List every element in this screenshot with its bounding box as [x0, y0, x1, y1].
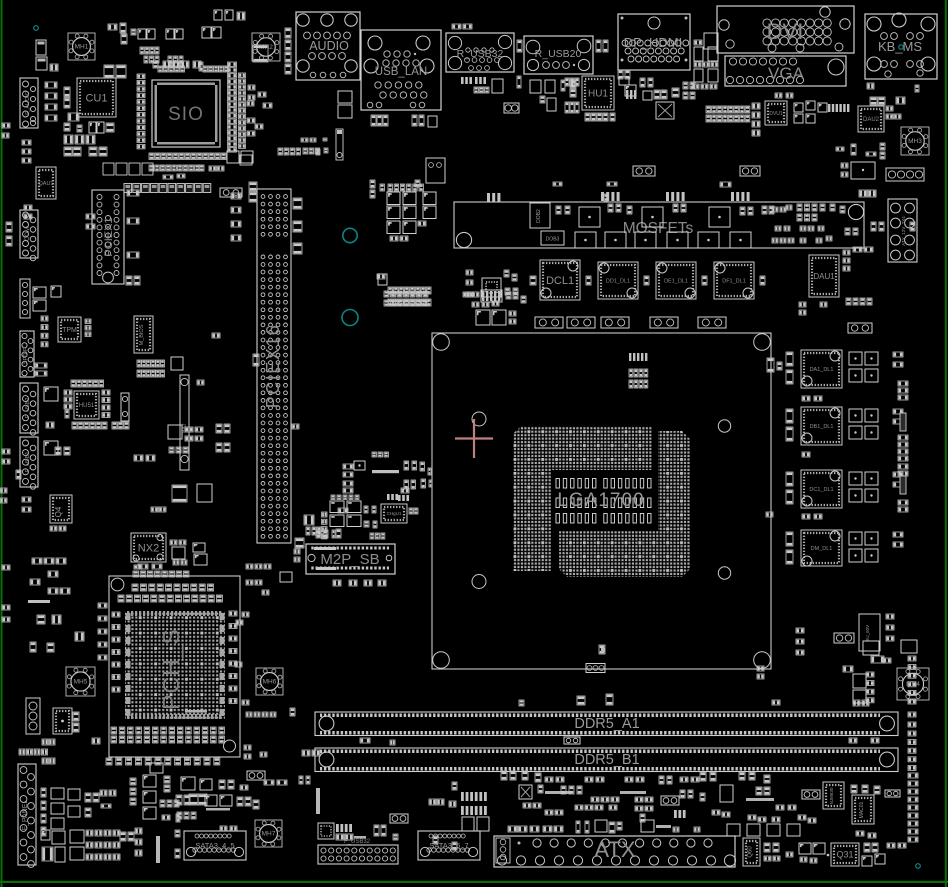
- svg-text:USB_LAN: USB_LAN: [375, 66, 427, 78]
- svg-text:MH5: MH5: [74, 679, 88, 686]
- svg-text:DVI: DVI: [767, 19, 804, 44]
- svg-text:NJM630: NJM630: [829, 787, 834, 804]
- svg-text:DDR5_B1: DDR5_B1: [574, 752, 639, 768]
- svg-text:SPDIF: SPDIF: [23, 347, 29, 364]
- svg-text:F_USB2: F_USB2: [25, 398, 31, 419]
- svg-text:DAU1: DAU1: [813, 272, 835, 281]
- svg-text:ATX: ATX: [594, 837, 635, 862]
- svg-text:SATA3_4_5: SATA3_4_5: [195, 841, 234, 850]
- svg-text:DDR5_A1: DDR5_A1: [574, 716, 639, 732]
- svg-text:CU1: CU1: [85, 93, 107, 105]
- svg-text:R_USB20: R_USB20: [535, 48, 582, 60]
- svg-text:MH6: MH6: [263, 679, 277, 686]
- svg-text:DB1_DL1: DB1_DL1: [810, 424, 834, 430]
- svg-text:MH3: MH3: [908, 138, 922, 145]
- svg-text:MOSFETs: MOSFETs: [623, 220, 694, 237]
- svg-text:6U_60V: 6U_60V: [865, 625, 870, 641]
- svg-text:COM: COM: [25, 227, 31, 241]
- svg-text:PCIEX1: PCIEX1: [103, 217, 115, 256]
- svg-text:QAU1: QAU1: [39, 181, 54, 187]
- svg-text:TPM: TPM: [62, 327, 77, 334]
- svg-text:VGA: VGA: [768, 64, 805, 83]
- svg-text:DOB2: DOB2: [536, 209, 542, 223]
- svg-text:HU51: HU51: [79, 403, 95, 409]
- svg-text:DOB3: DOB3: [546, 237, 560, 243]
- svg-text:F_PANEL: F_PANEL: [22, 800, 29, 831]
- svg-text:DD1_DL1: DD1_DL1: [606, 279, 630, 285]
- svg-text:DA1_DL1: DA1_DL1: [810, 367, 834, 373]
- svg-text:M2P_SB: M2P_SB: [320, 551, 379, 568]
- svg-text:DC1_DL1: DC1_DL1: [809, 487, 833, 493]
- svg-text:PCH_S: PCH_S: [158, 628, 184, 710]
- svg-text:NX2: NX2: [138, 543, 159, 555]
- svg-text:AUDIO: AUDIO: [309, 39, 349, 53]
- svg-text:DAU2: DAU2: [863, 117, 880, 123]
- svg-text:MAC01: MAC01: [859, 801, 865, 818]
- svg-text:DVU1: DVU1: [769, 111, 783, 117]
- svg-text:Q4: Q4: [54, 506, 63, 517]
- svg-text:Q31: Q31: [836, 850, 853, 860]
- svg-text:F_AUDIO: F_AUDIO: [25, 90, 31, 115]
- svg-text:ATX_12V_2X4: ATX_12V_2X4: [901, 216, 906, 246]
- svg-text:R_USB32: R_USB32: [457, 48, 504, 60]
- svg-text:SIO: SIO: [168, 104, 204, 125]
- svg-text:CHgU1: CHgU1: [387, 511, 402, 516]
- svg-text:DM_DL1: DM_DL1: [811, 546, 833, 552]
- svg-text:DF1_DL1: DF1_DL1: [722, 279, 746, 285]
- svg-text:M_BIOS: M_BIOS: [139, 324, 145, 345]
- svg-text:DE1_DL1: DE1_DL1: [664, 279, 688, 285]
- svg-text:KB_MS: KB_MS: [878, 39, 922, 54]
- svg-text:HU1: HU1: [588, 89, 608, 100]
- svg-text:LGA1700: LGA1700: [557, 490, 644, 511]
- svg-text:DP_HDMI: DP_HDMI: [624, 35, 683, 50]
- svg-text:MH7: MH7: [262, 831, 276, 838]
- svg-text:Q60: Q60: [748, 846, 754, 858]
- svg-text:MH1: MH1: [75, 44, 89, 51]
- svg-text:PCIEX16: PCIEX16: [263, 324, 283, 409]
- svg-text:DCL1: DCL1: [546, 275, 574, 287]
- svg-text:F_USB1: F_USB1: [25, 452, 31, 473]
